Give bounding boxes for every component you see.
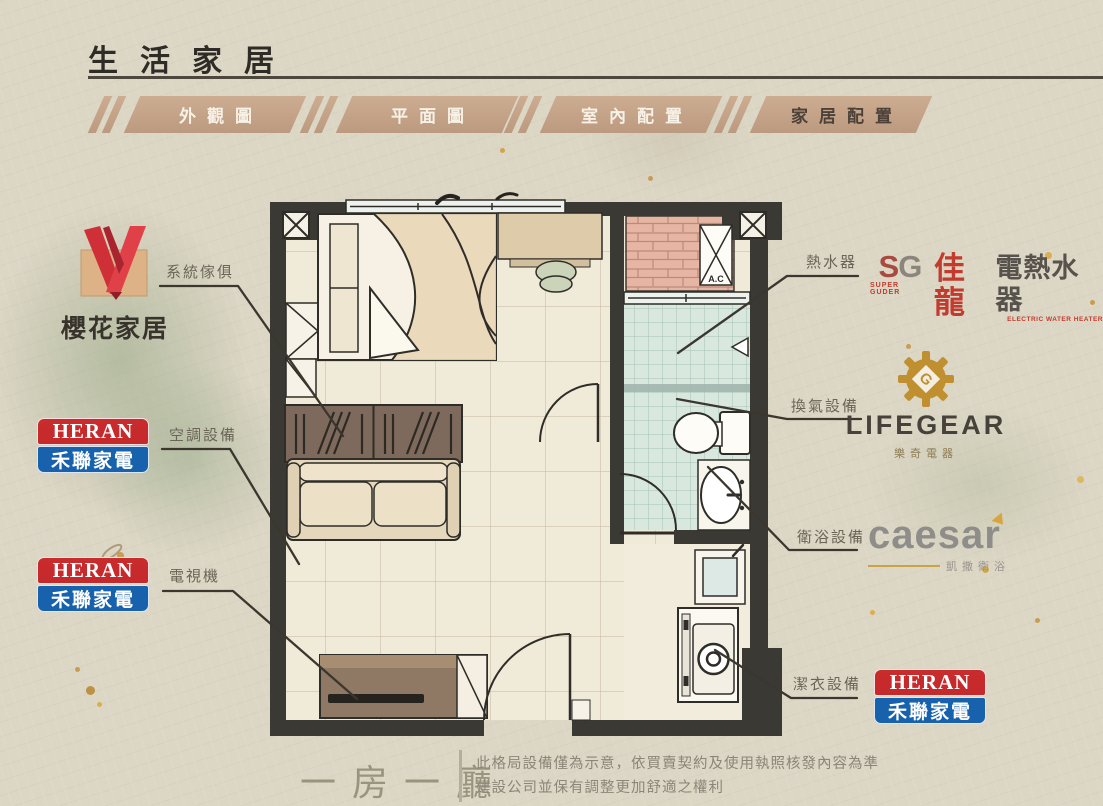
sofa: [287, 459, 460, 540]
jialong-sg-letters: SG: [879, 252, 922, 282]
brochure-page: { "header": { "title": "生活家居" }, "tabs":…: [0, 0, 1103, 806]
caesar-logo-zh: 凱撒衛浴: [946, 558, 1010, 574]
title-underline: [88, 76, 1103, 79]
tab-slash-decoration: [512, 96, 540, 133]
stool: [536, 261, 576, 292]
bathroom-sink: [698, 460, 750, 530]
shower-divider: [624, 384, 750, 392]
tab-slash-decoration: [308, 96, 336, 133]
jialong-product-text: 電熱水器: [995, 252, 1103, 316]
heran-logo-en: HERAN: [37, 418, 149, 445]
page-title: 生活家居: [88, 36, 296, 80]
washing-machine: [678, 608, 738, 702]
ac-unit-box: A.C: [700, 225, 732, 285]
bed: [318, 214, 496, 360]
label-laundry: 潔衣設備: [793, 673, 861, 694]
heran-logo: HERAN 禾聯家電: [37, 418, 149, 473]
tab-interior-layout[interactable]: 室內配置: [512, 96, 714, 133]
disclaimer-text: 此格局設備僅為示意，依買賣契約及使用執照核發內容為準 建設公司並保有調整更加舒適…: [476, 752, 879, 800]
heran-logo-zh: 禾聯家電: [37, 446, 149, 473]
heran-logo-zh: 禾聯家電: [874, 697, 986, 724]
nightstand: [286, 359, 316, 397]
toilet: [674, 412, 750, 454]
tv-cabinet: [320, 655, 487, 718]
caesar-gold-line: [868, 565, 940, 567]
window-balcony: [624, 292, 750, 304]
svg-text:A.C: A.C: [708, 274, 724, 284]
tab-floorplan[interactable]: 平面圖: [308, 96, 510, 133]
shaft-box: [286, 303, 318, 359]
label-water-heater: 熱水器: [806, 251, 857, 272]
tab-label: 平面圖: [380, 102, 475, 127]
laundry-sink-counter: [695, 545, 745, 604]
jialong-sub2-text: ELECTRIC WATER HEATER: [1007, 316, 1103, 323]
heran-logo: HERAN 禾聯家電: [37, 557, 149, 612]
desk: [498, 213, 602, 267]
sakura-logo-text: 櫻花家居: [55, 309, 175, 345]
label-system-furniture: 系統傢俱: [166, 261, 234, 282]
label-bathroom: 衛浴設備: [797, 526, 865, 547]
label-tv: 電視機: [169, 565, 220, 586]
lifegear-logo: G LIFEGEAR 樂奇電器: [843, 350, 1009, 461]
caesar-logo: caesar 凱撒衛浴: [868, 514, 1018, 574]
lifegear-logo-zh: 樂奇電器: [894, 445, 958, 461]
sakura-logo: 櫻花家居: [55, 222, 175, 345]
window-top: [346, 200, 565, 213]
tab-label: 外觀圖: [168, 102, 263, 127]
tab-exterior[interactable]: 外觀圖: [96, 96, 298, 133]
lifegear-logo-en: LIFEGEAR: [846, 410, 1007, 441]
system-furniture-cabinet: [285, 405, 462, 462]
tab-slash-decoration: [96, 96, 124, 133]
jialong-logo: SG SUPER GUDER 佳龍 電熱水器 ELECTRIC WATER HE…: [870, 252, 1103, 323]
heran-logo-zh: 禾聯家電: [37, 585, 149, 612]
watercolor-wash: [0, 140, 300, 580]
sakura-logo-icon: [76, 222, 154, 302]
tab-home-config[interactable]: 家居配置: [722, 96, 924, 133]
tab-slash-decoration: [722, 96, 750, 133]
floorplan-drawing: A.C: [270, 196, 782, 742]
tab-label: 室內配置: [570, 102, 693, 127]
gear-icon: G: [897, 350, 955, 408]
disclaimer-line-2: 建設公司並保有調整更加舒適之權利: [476, 776, 879, 800]
heran-logo-en: HERAN: [874, 669, 986, 696]
label-air-conditioner: 空調設備: [169, 424, 237, 445]
jialong-brand-text: 佳龍: [934, 252, 995, 320]
heran-logo: HERAN 禾聯家電: [874, 669, 986, 724]
heran-logo-en: HERAN: [37, 557, 149, 584]
tab-label: 家居配置: [780, 102, 903, 127]
tv-set: [328, 694, 424, 703]
disclaimer-line-1: 此格局設備僅為示意，依買賣契約及使用執照核發內容為準: [476, 752, 879, 776]
footer-divider: [459, 750, 462, 802]
jialong-sub-text: SUPER GUDER: [870, 282, 930, 296]
gold-fleck-decoration: [648, 176, 653, 181]
